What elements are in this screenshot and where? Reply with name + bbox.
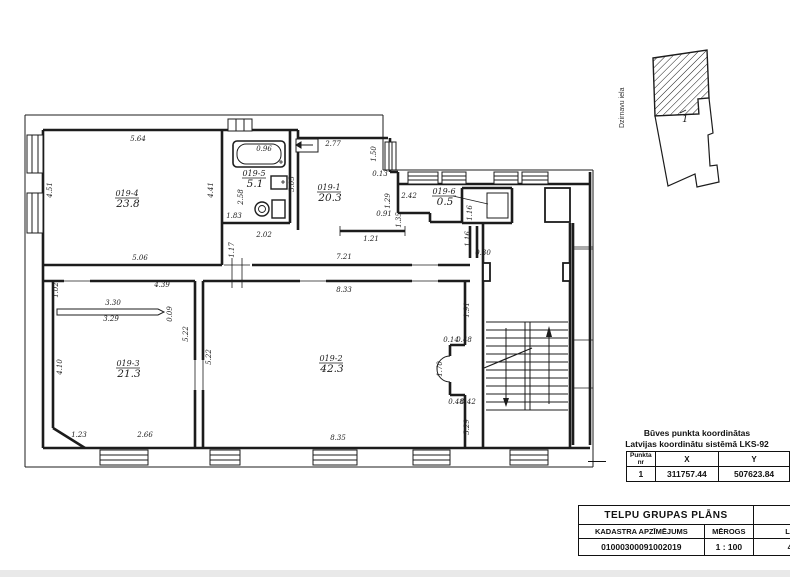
window-symbol bbox=[100, 450, 148, 465]
room-area: 5.1 bbox=[247, 178, 264, 190]
dim-label: 0.42 bbox=[460, 398, 476, 406]
room-id: 019-6 bbox=[432, 187, 455, 196]
stair-up-arrow bbox=[546, 326, 552, 337]
dim-label: 5.22 bbox=[182, 326, 190, 342]
coord-title-line1: Būves punkta koordinātas bbox=[604, 428, 790, 439]
dim-label: 2.58 bbox=[237, 189, 245, 206]
dim-label: 0.30 bbox=[475, 249, 491, 257]
floor-plan-page: 1 Dzirnavu iela 019-423.8019-55.1019-120… bbox=[0, 0, 790, 577]
page-value: 4 bbox=[754, 539, 790, 556]
scan-edge bbox=[0, 570, 790, 577]
dim-label: 1.91 bbox=[463, 302, 471, 318]
col-header-point: Punkta nr bbox=[627, 452, 656, 467]
vent-box bbox=[228, 119, 252, 131]
street-name-label: Dzirnavu iela bbox=[619, 87, 626, 128]
dim-label: 5.22 bbox=[205, 349, 213, 365]
dim-label: 0.13 bbox=[372, 170, 388, 178]
window-symbol bbox=[442, 172, 466, 184]
cadastre-number: 01000300091002019 bbox=[579, 539, 705, 556]
room-area: 23.8 bbox=[115, 198, 140, 210]
room-area: 21.3 bbox=[116, 368, 141, 380]
room-label-019-2: 019-242.3 bbox=[319, 354, 344, 375]
window-symbol bbox=[408, 172, 438, 184]
floor-plan-drawing: 1 Dzirnavu iela 019-423.8019-55.1019-120… bbox=[0, 0, 790, 577]
page-label: LP bbox=[754, 525, 790, 539]
site-plan: 1 Dzirnavu iela bbox=[619, 50, 719, 187]
dim-label: 0.48 bbox=[456, 336, 472, 344]
room-label-019-1: 019-120.3 bbox=[317, 183, 342, 204]
room-label-019-6: 019-60.5 bbox=[432, 187, 456, 208]
window-symbol bbox=[522, 172, 548, 184]
dim-label: 2.77 bbox=[324, 140, 341, 148]
dim-label: 1.50 bbox=[370, 146, 378, 162]
dim-label: 0.91 bbox=[376, 210, 392, 218]
dim-label: 1.35 bbox=[395, 212, 403, 228]
room-label-019-4: 019-423.8 bbox=[115, 189, 140, 210]
coordinates-block: Būves punkta koordinātas Latvijas koordi… bbox=[604, 428, 790, 482]
dim-label: 0.96 bbox=[256, 145, 272, 153]
dim-label: 2.02 bbox=[255, 231, 272, 239]
title-block: TELPU GRUPAS PLĀNS KADASTRA APZĪMĒJUMS M… bbox=[578, 505, 790, 556]
window-symbol bbox=[494, 172, 518, 184]
coordinates-table: Punkta nr X Y 1 311757.44 507623.84 bbox=[626, 451, 790, 482]
stair-hall-piers bbox=[483, 188, 570, 281]
window-symbol bbox=[510, 450, 548, 465]
toilet-icon bbox=[255, 200, 285, 218]
room-id: 019-4 bbox=[115, 189, 138, 198]
room-label-019-5: 019-55.1 bbox=[242, 169, 266, 190]
scale-value: 1 : 100 bbox=[704, 539, 753, 556]
room-area: 0.5 bbox=[437, 196, 454, 208]
site-point-label: 1 bbox=[682, 114, 688, 125]
scale-label: MĒROGS bbox=[704, 525, 753, 539]
dim-label: 2.42 bbox=[400, 192, 417, 200]
dim-label: 1.16 bbox=[466, 205, 474, 221]
dim-label: 3.29 bbox=[103, 315, 119, 323]
window-symbol bbox=[313, 450, 357, 465]
room-id: 019-2 bbox=[319, 354, 342, 363]
dim-label: 4.41 bbox=[207, 182, 215, 199]
window-symbol bbox=[27, 193, 43, 233]
title-block-table: TELPU GRUPAS PLĀNS KADASTRA APZĪMĒJUMS M… bbox=[578, 505, 790, 556]
window-symbol bbox=[210, 450, 240, 465]
dim-label: 1.29 bbox=[384, 193, 392, 209]
point-nr-value: 1 bbox=[627, 467, 656, 482]
dim-label: 1.70 bbox=[436, 361, 444, 377]
plan-title: TELPU GRUPAS PLĀNS bbox=[579, 506, 754, 525]
x-value: 311757.44 bbox=[655, 467, 718, 482]
cadastre-label: KADASTRA APZĪMĒJUMS bbox=[579, 525, 705, 539]
col-header-y: Y bbox=[719, 452, 790, 467]
y-value: 507623.84 bbox=[719, 467, 790, 482]
sink-icon bbox=[271, 176, 287, 189]
room-id: 019-5 bbox=[242, 169, 265, 178]
dim-label: 1.17 bbox=[228, 242, 236, 258]
dim-label: 1.02 bbox=[52, 282, 60, 298]
dim-label: 3.30 bbox=[105, 299, 121, 307]
dim-label: 1.23 bbox=[71, 431, 87, 439]
title-block-extra-cell bbox=[754, 506, 790, 525]
dim-label: 7.21 bbox=[336, 253, 352, 261]
window-symbol bbox=[385, 142, 396, 170]
coord-title-line2: Latvijas koordinātu sistēmā LKS-92 bbox=[604, 439, 790, 450]
room-area: 20.3 bbox=[317, 192, 342, 204]
dim-label: 0.09 bbox=[166, 306, 174, 322]
dim-label: 1.83 bbox=[226, 212, 242, 220]
room-label-019-3: 019-321.3 bbox=[116, 359, 141, 380]
room-id: 019-1 bbox=[317, 183, 340, 192]
col-header-x: X bbox=[655, 452, 718, 467]
dim-label: 1.16 bbox=[464, 231, 472, 247]
room-id: 019-3 bbox=[116, 359, 139, 368]
dim-label: 8.35 bbox=[330, 434, 346, 442]
room-area: 42.3 bbox=[319, 363, 344, 375]
dim-label: 8.33 bbox=[336, 286, 352, 294]
dim-label: 4.10 bbox=[56, 359, 64, 376]
dim-label: 2.66 bbox=[136, 431, 153, 439]
dim-label: 5.64 bbox=[130, 135, 146, 143]
dim-label: 1.21 bbox=[363, 235, 379, 243]
closet-fixture bbox=[487, 193, 508, 218]
staircase bbox=[484, 322, 568, 410]
outer-boundary bbox=[25, 115, 593, 467]
dim-label: 3.05 bbox=[288, 176, 296, 192]
table-row: 1 311757.44 507623.84 bbox=[627, 467, 790, 482]
dim-label: 5.06 bbox=[132, 254, 148, 262]
dim-label: 4.39 bbox=[153, 281, 170, 289]
window-symbol bbox=[413, 450, 450, 465]
door-arrow-icon bbox=[296, 139, 318, 152]
window-symbol bbox=[27, 135, 43, 173]
dim-label: 4.51 bbox=[46, 182, 54, 199]
leader-line bbox=[453, 196, 488, 204]
dim-label: 5.29 bbox=[463, 419, 471, 435]
